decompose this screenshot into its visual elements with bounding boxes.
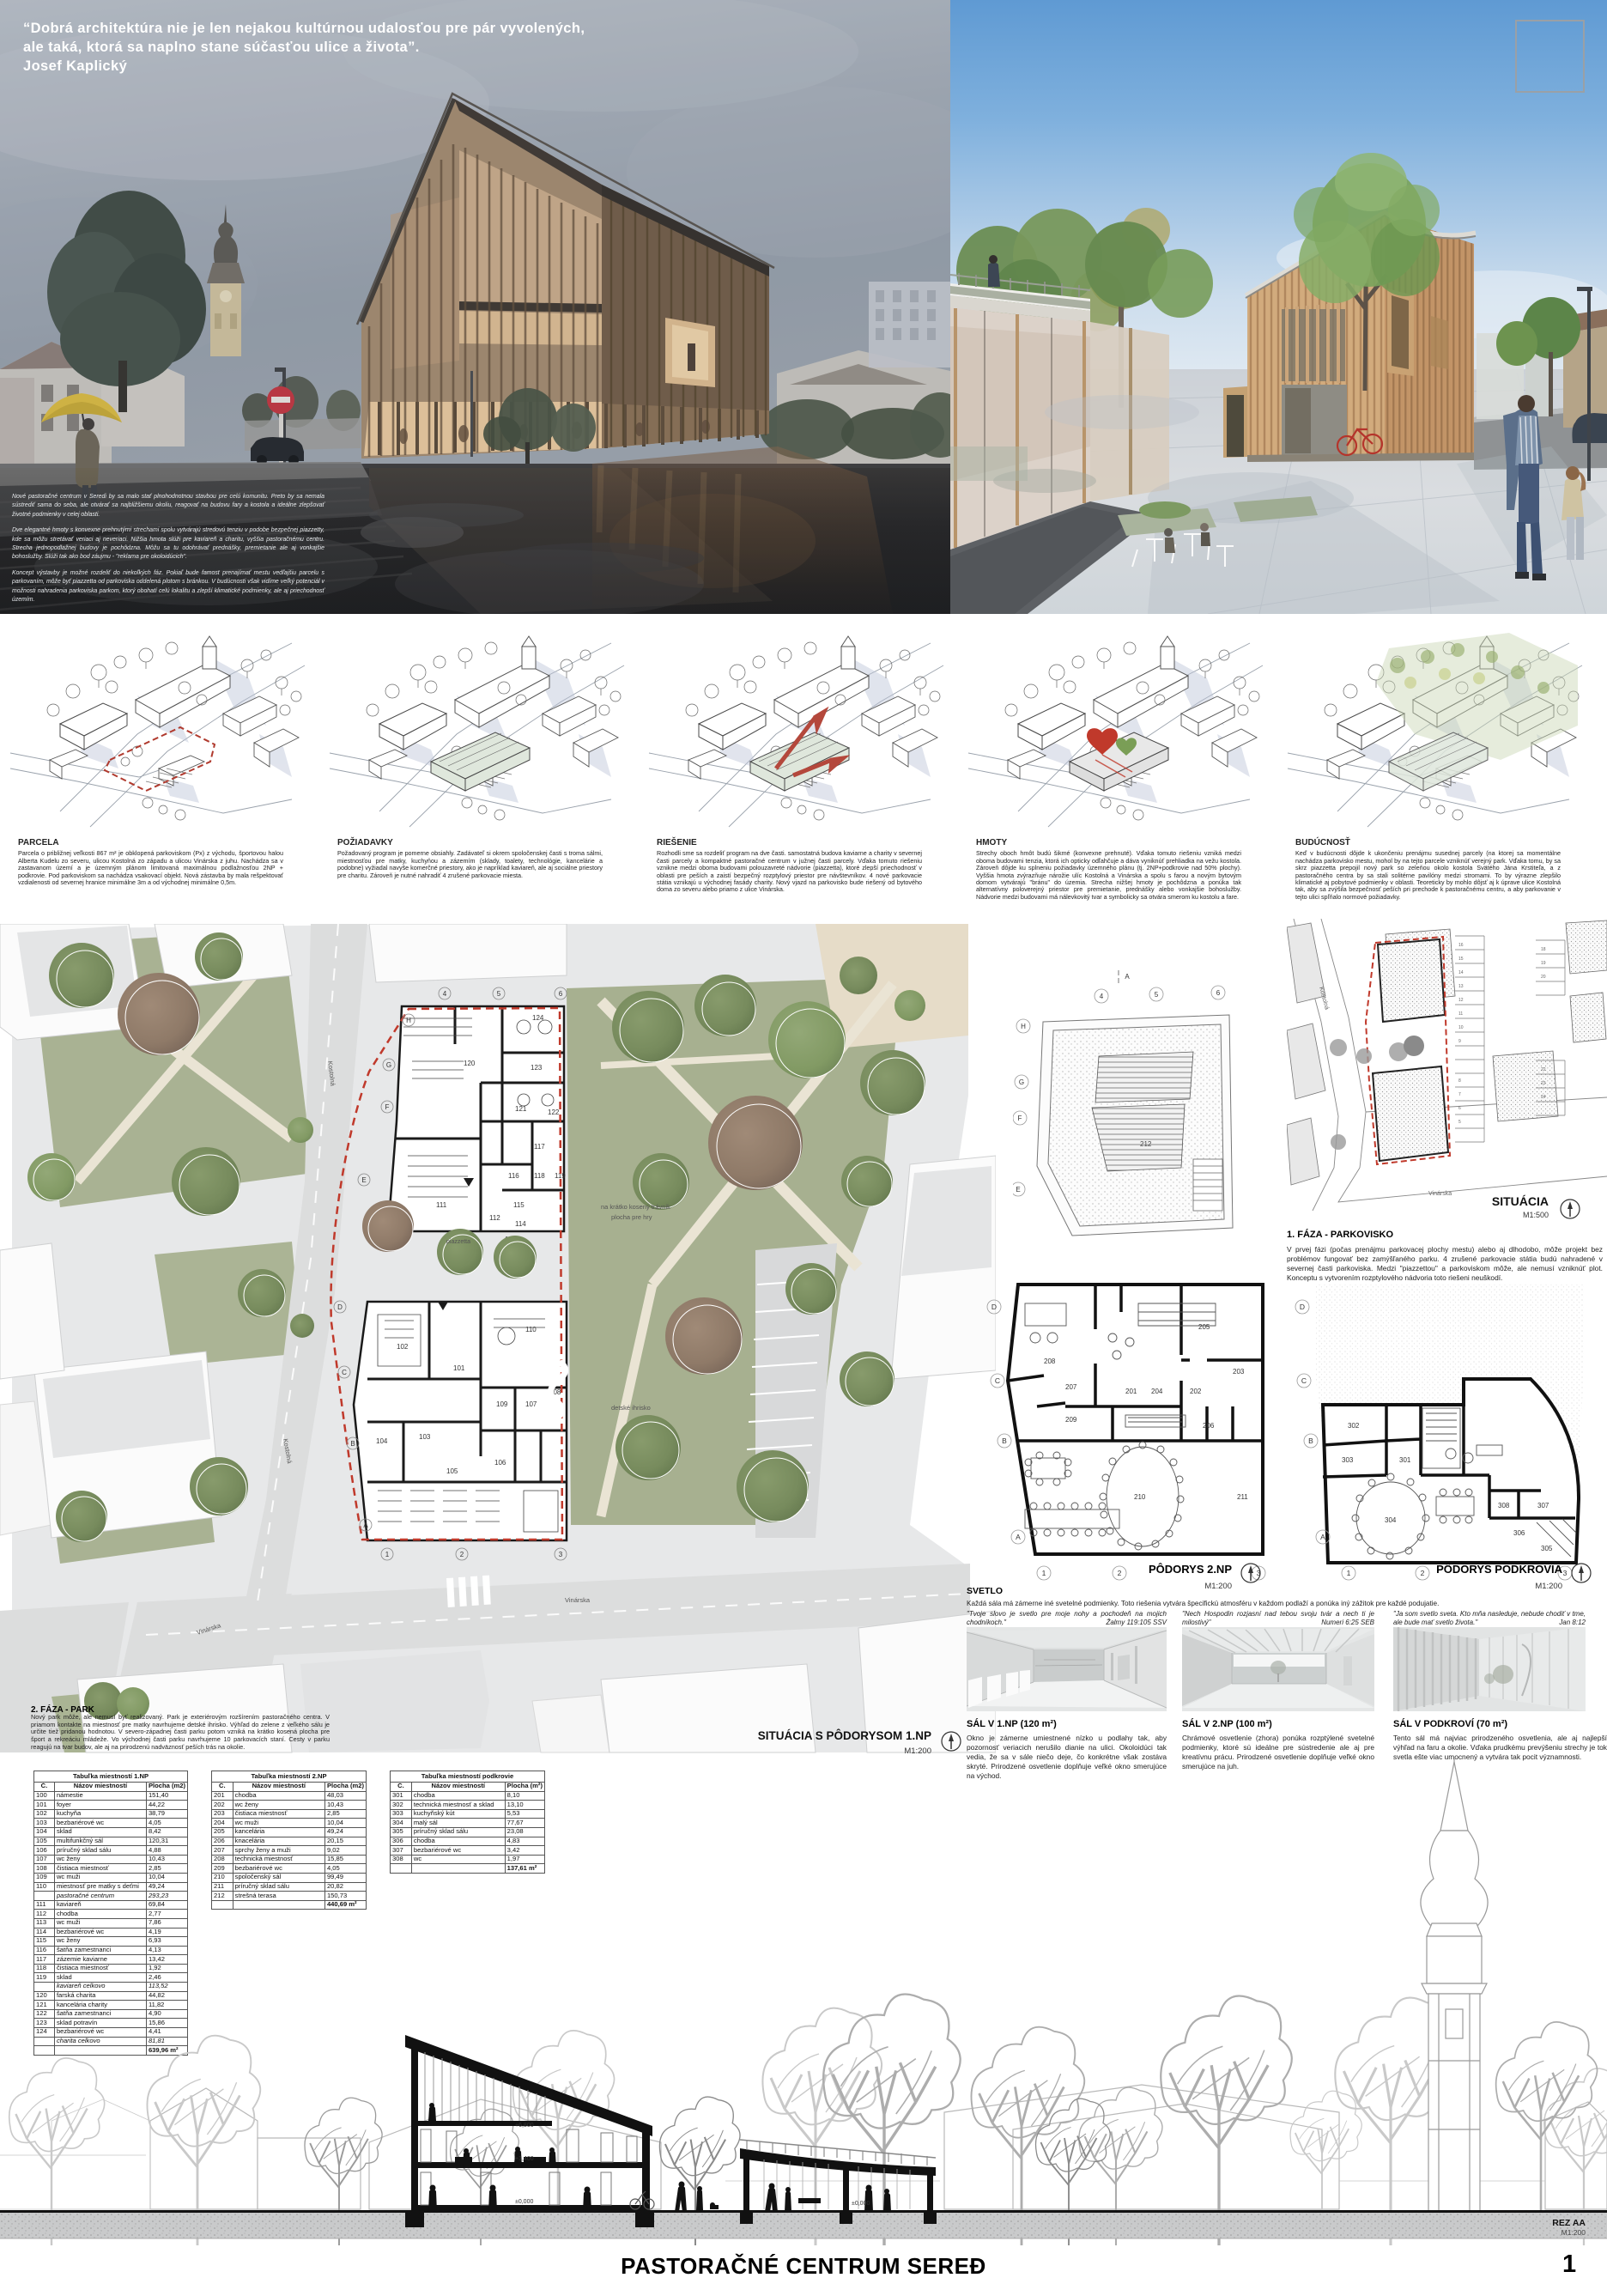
svg-text:120: 120 (464, 1060, 476, 1067)
svg-text:16: 16 (1458, 943, 1464, 948)
svg-text:A: A (1320, 1533, 1325, 1541)
svg-text:20: 20 (1541, 975, 1546, 980)
svg-text:116: 116 (508, 1172, 519, 1180)
svg-text:G: G (386, 1061, 391, 1069)
svg-text:B: B (1308, 1437, 1313, 1445)
svg-text:14: 14 (1458, 970, 1464, 975)
svg-text:18: 18 (1541, 947, 1546, 952)
svg-text:1: 1 (385, 1551, 390, 1558)
svg-text:na krátko kosený trávnik: na krátko kosený trávnik (601, 1203, 670, 1211)
svg-text:B: B (1002, 1437, 1007, 1445)
svg-text:117: 117 (534, 1143, 545, 1151)
svg-text:H: H (1021, 1023, 1026, 1030)
svg-text:308: 308 (1498, 1502, 1510, 1509)
svg-text:D: D (1300, 1303, 1305, 1311)
svg-text:Vinárska: Vinárska (1428, 1191, 1452, 1197)
svg-text:111: 111 (436, 1201, 447, 1209)
svg-text:211: 211 (1237, 1493, 1248, 1501)
svg-text:G: G (1019, 1078, 1024, 1086)
svg-text:+3,400: +3,400 (515, 2156, 534, 2162)
svg-text:3: 3 (559, 1551, 563, 1558)
svg-text:109: 109 (496, 1400, 508, 1408)
svg-text:305: 305 (1541, 1545, 1553, 1552)
svg-text:REZ AA: REZ AA (1552, 2218, 1586, 2228)
svg-text:+6,800: +6,800 (515, 2123, 534, 2129)
svg-text:C: C (342, 1369, 347, 1376)
svg-text:201: 201 (1125, 1388, 1137, 1395)
svg-text:105: 105 (446, 1467, 458, 1475)
svg-text:110: 110 (525, 1326, 537, 1333)
svg-text:F: F (1018, 1115, 1022, 1122)
svg-text:SITUÁCIA S PÔDORYSOM 1.NP: SITUÁCIA S PÔDORYSOM 1.NP (758, 1729, 931, 1742)
svg-text:19: 19 (1541, 961, 1546, 966)
svg-text:204: 204 (1151, 1388, 1163, 1395)
svg-text:212: 212 (1140, 1140, 1152, 1148)
svg-text:209: 209 (1065, 1416, 1077, 1424)
svg-text:±0,000: ±0,000 (515, 2199, 533, 2205)
svg-text:1: 1 (1042, 1569, 1046, 1577)
svg-text:208: 208 (1044, 1358, 1056, 1365)
svg-text:Vinárska: Vinárska (565, 1596, 591, 1604)
svg-text:206: 206 (1203, 1422, 1215, 1430)
svg-text:E: E (361, 1176, 366, 1184)
svg-text:104: 104 (376, 1437, 388, 1445)
svg-text:M1:200: M1:200 (1562, 2228, 1586, 2237)
svg-text:6: 6 (1216, 989, 1221, 997)
svg-text:9: 9 (1458, 1039, 1461, 1044)
svg-text:3: 3 (1563, 1569, 1568, 1577)
svg-text:122: 122 (548, 1109, 560, 1116)
svg-text:M1:500: M1:500 (1523, 1211, 1549, 1219)
svg-text:102: 102 (397, 1343, 409, 1351)
svg-text:D: D (337, 1303, 343, 1311)
svg-text:15: 15 (1458, 957, 1464, 962)
svg-text:F: F (385, 1103, 390, 1111)
svg-text:107: 107 (525, 1400, 537, 1408)
svg-text:301: 301 (1399, 1456, 1411, 1464)
svg-text:106: 106 (494, 1459, 506, 1467)
svg-text:Kostolná: Kostolná (1318, 987, 1330, 1011)
svg-text:4: 4 (443, 990, 447, 998)
svg-text:B: B (350, 1440, 355, 1448)
svg-text:101: 101 (453, 1364, 465, 1372)
svg-text:A: A (1016, 1533, 1021, 1541)
svg-text:plocha pre hry: plocha pre hry (611, 1213, 652, 1221)
svg-text:307: 307 (1537, 1502, 1549, 1509)
svg-text:1: 1 (1347, 1569, 1351, 1577)
svg-text:114: 114 (515, 1220, 526, 1228)
svg-text:202: 202 (1190, 1388, 1202, 1395)
svg-text:124: 124 (532, 1014, 544, 1022)
svg-text:7: 7 (1458, 1092, 1461, 1097)
svg-text:207: 207 (1065, 1383, 1077, 1391)
svg-text:24: 24 (1541, 1095, 1546, 1100)
svg-text:22: 22 (1541, 1067, 1546, 1072)
svg-text:306: 306 (1513, 1529, 1525, 1537)
svg-text:303: 303 (1342, 1456, 1354, 1464)
svg-text:E: E (1016, 1186, 1020, 1194)
svg-text:123: 123 (531, 1064, 543, 1072)
svg-text:23: 23 (1541, 1081, 1546, 1086)
svg-text:8: 8 (1458, 1078, 1461, 1084)
svg-text:5: 5 (1458, 1120, 1461, 1125)
svg-text:A: A (1125, 973, 1130, 981)
svg-text:118: 118 (534, 1172, 545, 1180)
svg-text:115: 115 (513, 1201, 525, 1209)
svg-text:5: 5 (497, 990, 501, 998)
svg-text:D: D (991, 1303, 997, 1311)
svg-text:13: 13 (1458, 984, 1464, 989)
svg-text:205: 205 (1198, 1323, 1210, 1331)
svg-text:2: 2 (460, 1551, 464, 1558)
svg-text:112: 112 (489, 1214, 500, 1222)
svg-text:11: 11 (1458, 1011, 1463, 1017)
svg-text:121: 121 (515, 1105, 527, 1113)
svg-text:6: 6 (1458, 1106, 1461, 1111)
svg-text:4: 4 (1100, 993, 1104, 1000)
svg-text:6: 6 (559, 990, 563, 998)
svg-text:103: 103 (419, 1433, 431, 1441)
svg-text:SITUÁCIA: SITUÁCIA (1492, 1194, 1549, 1208)
svg-text:±0,000: ±0,000 (852, 2201, 870, 2207)
svg-text:piazzetta: piazzetta (446, 1239, 470, 1245)
svg-text:210: 210 (1134, 1493, 1146, 1501)
svg-text:304: 304 (1385, 1516, 1397, 1524)
svg-text:203: 203 (1233, 1368, 1245, 1376)
svg-text:12: 12 (1458, 998, 1464, 1003)
svg-text:H: H (406, 1017, 411, 1024)
svg-text:A: A (363, 1522, 368, 1529)
svg-text:C: C (1301, 1376, 1307, 1385)
svg-text:10: 10 (1458, 1025, 1464, 1030)
svg-text:C: C (995, 1376, 1000, 1385)
svg-text:detské ihrisko: detské ihrisko (611, 1404, 651, 1412)
svg-text:302: 302 (1348, 1422, 1360, 1430)
svg-text:5: 5 (1155, 991, 1159, 999)
